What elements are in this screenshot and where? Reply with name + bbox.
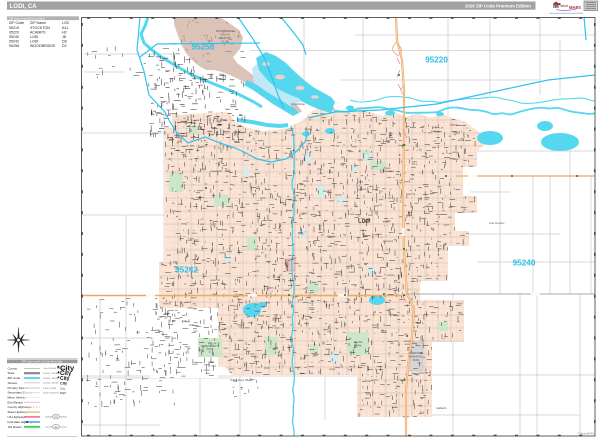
svg-text:95220: 95220 [9,30,19,34]
svg-text:ZIP Code: ZIP Code [9,21,24,25]
svg-text:Minor Streets: Minor Streets [8,396,26,400]
svg-text:PARK: PARK [413,358,420,362]
svg-text:LOC: LOC [62,21,70,25]
svg-text:Galliardo: Galliardo [436,406,447,410]
svg-text:Tecklenburg Village: Tecklenburg Village [230,378,253,382]
svg-text:Lodi: Lodi [358,218,370,225]
svg-text:ZIP Name: ZIP Name [30,21,46,25]
svg-text:City: City [60,386,66,390]
svg-text:ZIP Code: ZIP Code [8,376,21,380]
svg-text:H2: H2 [62,30,67,34]
svg-text:Lodi Junction: Lodi Junction [489,221,505,225]
svg-text:LODI: LODI [30,40,38,44]
svg-text:Streets: Streets [8,381,18,385]
svg-text:95240: 95240 [9,35,19,39]
svg-text:95219: 95219 [9,26,19,30]
svg-text:95240: 95240 [513,259,536,268]
svg-text:arket: arket [561,4,569,8]
svg-text:J8: J8 [62,35,66,39]
svg-text:95220: 95220 [425,56,448,65]
svg-text:D8: D8 [62,40,67,44]
svg-text:WOODBRIDGE: WOODBRIDGE [30,44,56,48]
svg-text:LODI: LODI [30,35,38,39]
svg-text:Toll Roads: Toll Roads [8,425,23,429]
svg-text:Reel Acre: Reel Acre [383,169,395,173]
svg-text:City: City [60,381,68,385]
svg-text:WOODBRIDGE: WOODBRIDGE [216,29,235,33]
svg-text:COUNTRY: COUNTRY [219,36,232,40]
svg-text:95258: 95258 [192,43,215,52]
svg-text:GOLF &: GOLF & [220,33,230,37]
svg-text:Exit Ramps: Exit Ramps [8,400,24,404]
svg-text:2020 ZIP Code Premium Edition: 2020 ZIP Code Premium Edition [465,4,531,9]
svg-text:101: 101 [54,416,59,419]
svg-text:PARK: PARK [355,344,362,348]
svg-text:US Highways: US Highways [8,415,27,419]
svg-text:ZIP Code Index/Grid Locator: ZIP Code Index/Grid Locator [9,16,45,20]
svg-text:95242: 95242 [9,40,19,44]
svg-text:County: County [8,366,18,370]
svg-text:STOCKTON: STOCKTON [30,26,50,30]
svg-text:CLUB: CLUB [222,40,229,44]
svg-text:D2: D2 [62,44,67,48]
svg-text:State: State [8,371,15,375]
svg-text:A11: A11 [62,26,68,30]
svg-text:MEMORIAL: MEMORIAL [409,355,423,359]
svg-text:LODI, CA: LODI, CA [10,3,38,10]
svg-text:95242: 95242 [175,266,198,275]
svg-text:© MarketMAPS: © MarketMAPS [577,433,594,436]
svg-text:95258: 95258 [9,44,19,48]
svg-text:Hansons: Hansons [383,239,394,243]
svg-text:50,000 - 249,999: 50,000 - 249,999 [43,373,60,375]
svg-text:ZIP Code Level 4 to 5 City Str: ZIP Code Level 4 to 5 City Street Map [22,361,63,364]
svg-text:City: City [60,391,65,395]
svg-text:5,000 - 9,999: 5,000 - 9,999 [43,388,57,390]
svg-text:Woodbridge: Woodbridge [291,102,305,106]
svg-text:25,000 - 49,999: 25,000 - 49,999 [43,378,59,380]
svg-text:10,000 - 24,999: 10,000 - 24,999 [43,383,59,385]
svg-text:SALAS: SALAS [354,340,363,344]
svg-text:ACAMPO: ACAMPO [30,30,46,34]
svg-text:CHEROKEE: CHEROKEE [409,351,424,355]
svg-text:PARK: PARK [207,347,214,351]
